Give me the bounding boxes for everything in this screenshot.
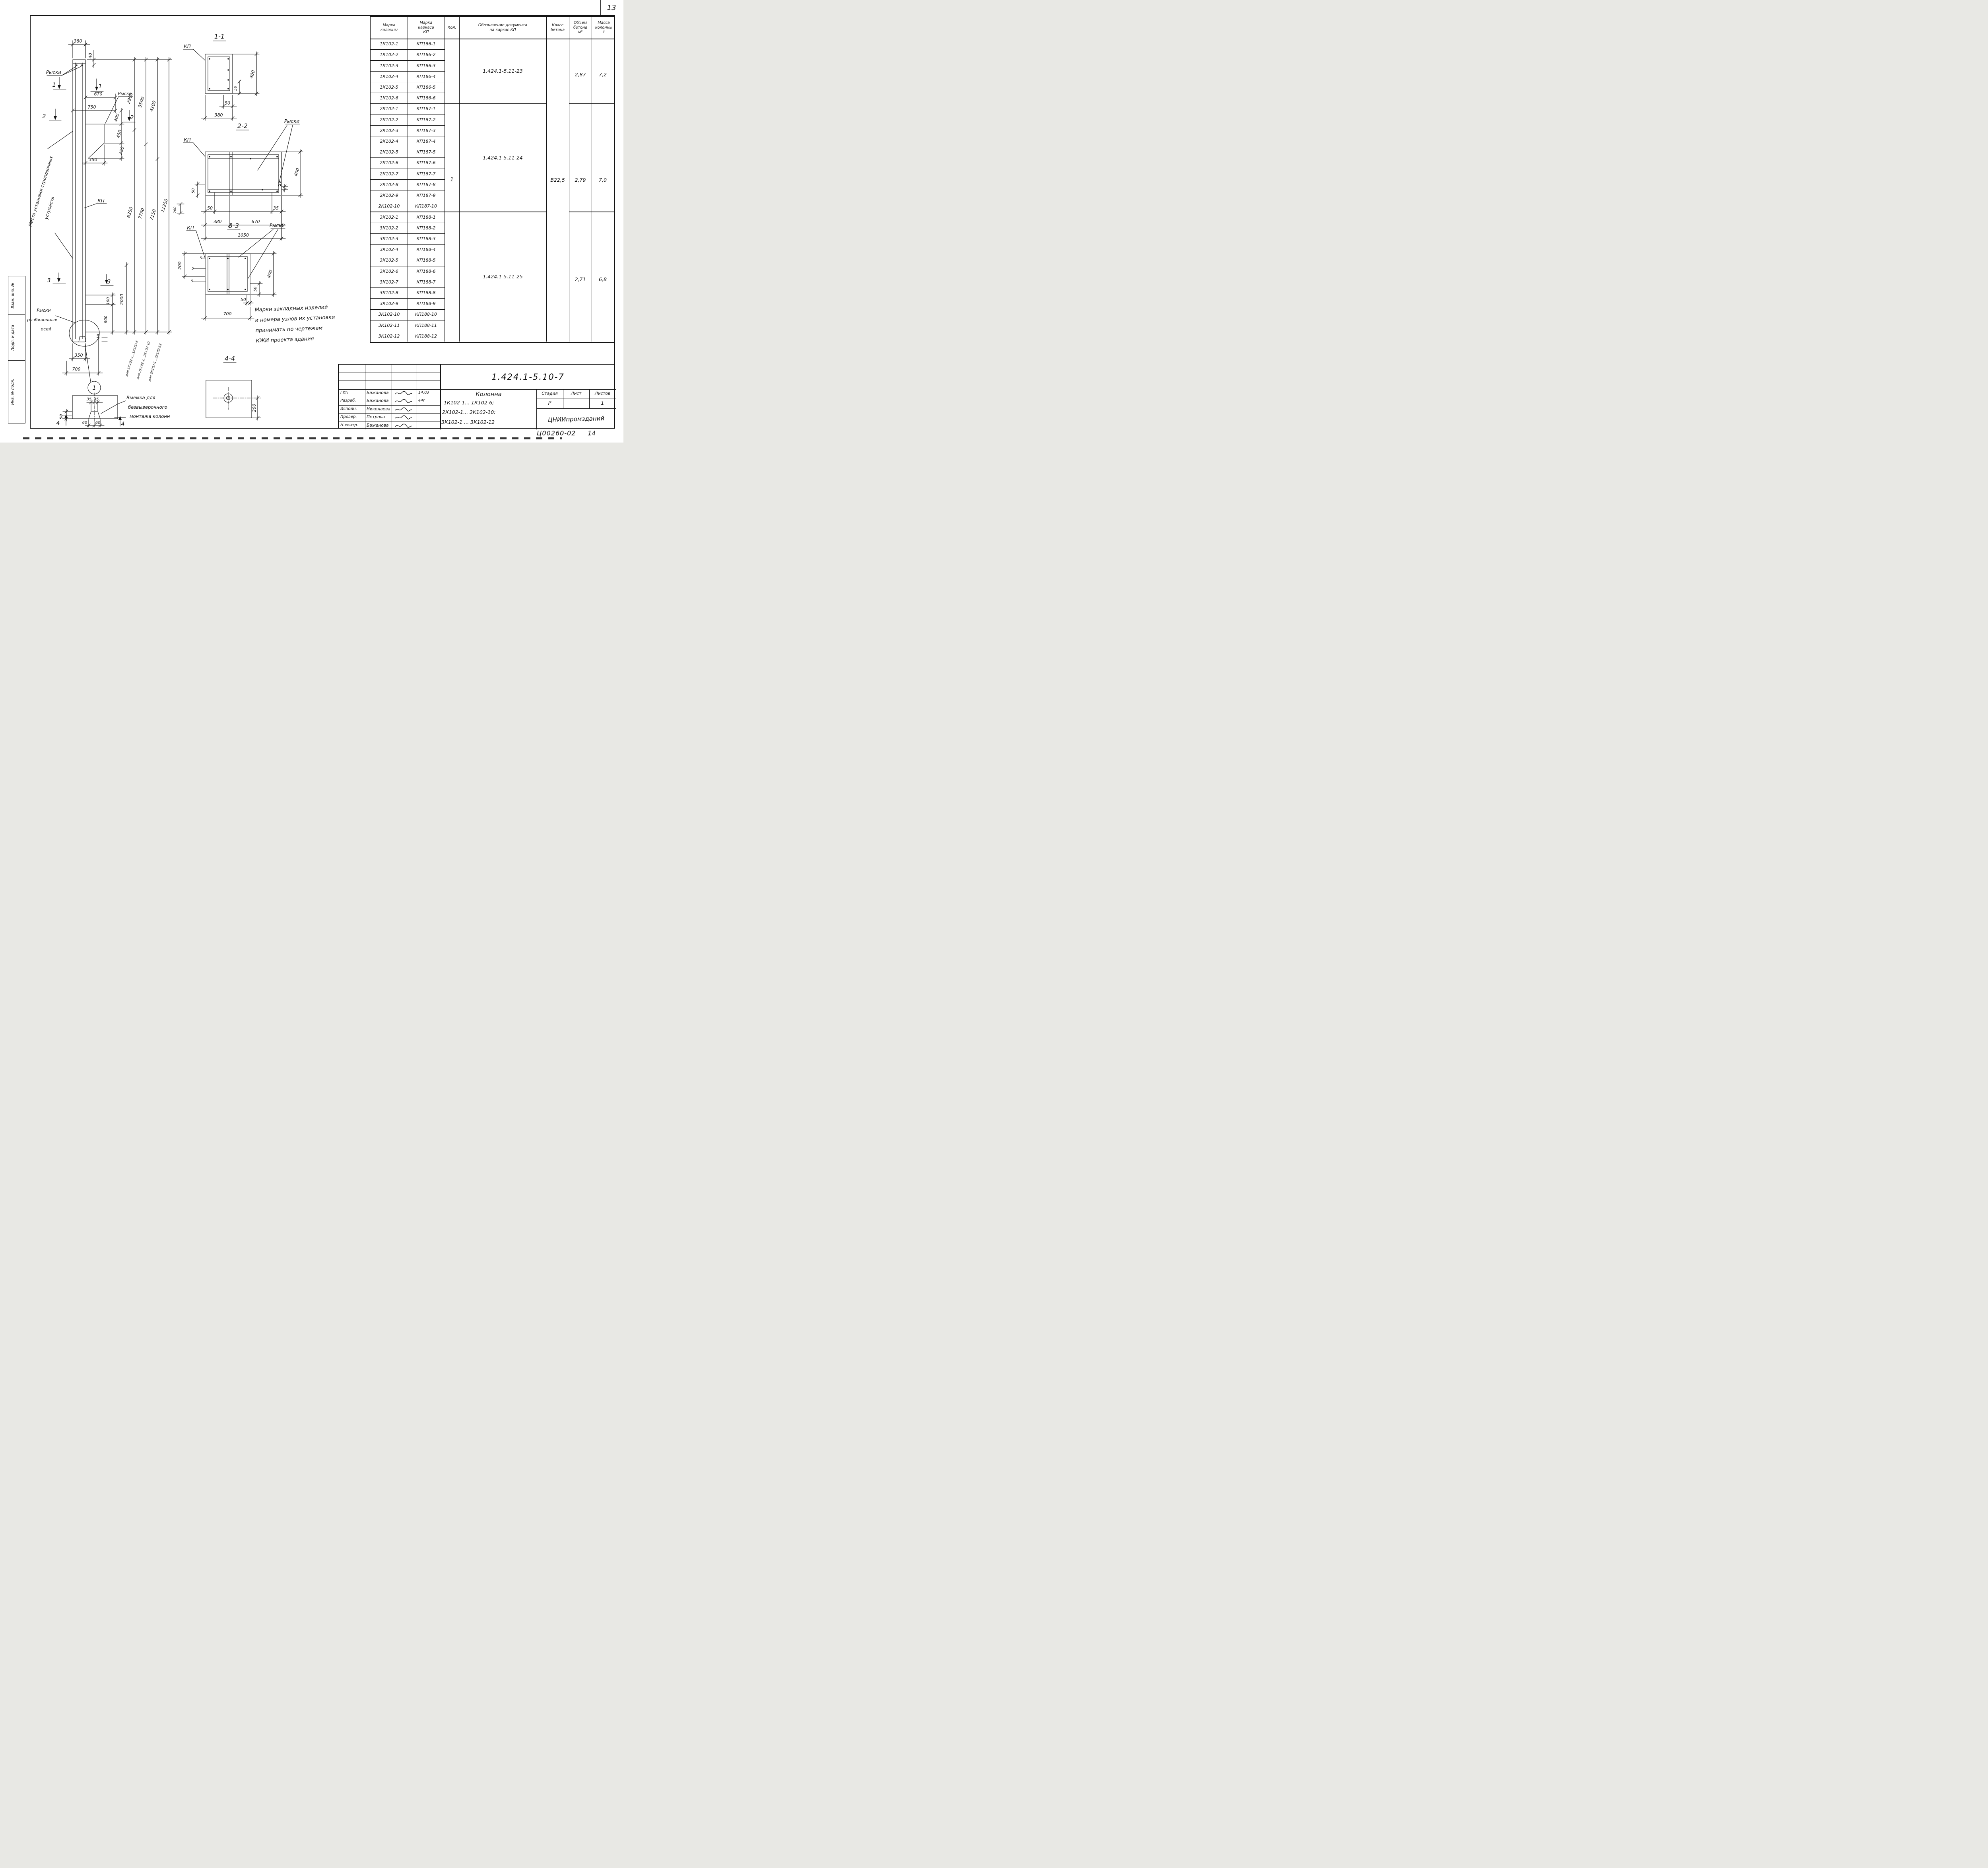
column-mark-cell: 2К102-9 xyxy=(371,190,408,201)
signature-scribble xyxy=(394,407,413,412)
sig-name: Николаева xyxy=(367,405,390,413)
dim-label: 670 xyxy=(252,219,260,224)
table-header-concrete_class: Класс бетона xyxy=(546,17,569,39)
column-mark-cell: 2К102-5 xyxy=(371,147,408,157)
sig-role: Исполн. xyxy=(340,405,357,413)
dim-label: 50 xyxy=(59,414,64,419)
dim-label: для 3К102-1...3К102-12 xyxy=(148,343,163,382)
dim-label: 400 xyxy=(248,70,256,79)
frame-mark-cell: КП187-2 xyxy=(408,115,445,125)
dim-label: 3 xyxy=(107,279,111,285)
title-block-product: Колонна xyxy=(441,390,536,399)
sheet-header: Лист xyxy=(563,389,589,398)
dim-label: 50 xyxy=(207,206,213,211)
dim-label: 4100 xyxy=(149,100,157,113)
frame-mark-cell: КП187-6 xyxy=(408,157,445,168)
frame-mark-cell: КП186-2 xyxy=(408,49,445,60)
dim-label: 7150 xyxy=(149,209,157,221)
volume-value: 2,87 xyxy=(569,68,592,80)
frame-mark-cell: КП187-1 xyxy=(408,103,445,114)
column-mark-cell: 2К102-6 xyxy=(371,157,408,168)
sig-date: 44г xyxy=(418,397,425,405)
dim-label: 4 xyxy=(121,421,125,427)
column-mark-cell: 1К102-1 xyxy=(371,39,408,49)
volume-value: 2,71 xyxy=(569,273,592,285)
dim-label: 380 xyxy=(214,219,222,224)
column-mark-cell: 3К102-2 xyxy=(371,223,408,233)
dim-label: 670 xyxy=(94,91,103,97)
dim-label: КП xyxy=(184,44,191,49)
stage-value: Р xyxy=(536,398,563,408)
dim-label: 1-1 xyxy=(214,33,225,40)
sig-name: Петрова xyxy=(367,413,385,421)
dim-label: 11250 xyxy=(160,198,169,213)
dim-label: устройств xyxy=(44,196,56,220)
dim-label: 1 xyxy=(99,83,102,90)
sig-role: Разраб. xyxy=(340,397,356,405)
dim-label: 50 xyxy=(233,86,238,91)
sig-role: ГИП xyxy=(340,389,349,397)
table-header-doc: Обозначение документа на каркас КП xyxy=(459,17,546,39)
column-mark-cell: 3К102-7 xyxy=(371,277,408,287)
dim-label: 5 xyxy=(200,256,202,260)
table-header-qty: Кол. xyxy=(445,17,459,39)
column-mark-cell: 2К102-3 xyxy=(371,125,408,136)
dim-label: 380 xyxy=(215,113,223,118)
table-group-sep xyxy=(569,212,614,212)
dim-label: 900 xyxy=(104,315,108,323)
column-mark-cell: 2К102-7 xyxy=(371,169,408,179)
dim-label: 5 xyxy=(192,267,194,271)
signature-scribble xyxy=(394,415,413,420)
doc-designation: 1.424.1-5.11-25 xyxy=(459,212,546,342)
qty-value: 1 xyxy=(445,174,459,186)
dim-label: 700 xyxy=(223,311,232,317)
dim-label: Места установки строповочных xyxy=(27,155,54,227)
dim-label: 3500 xyxy=(137,96,146,109)
frame-mark-cell: КП188-1 xyxy=(408,212,445,222)
dim-label: 400 xyxy=(113,113,120,122)
dim-label: 400 xyxy=(293,167,301,177)
column-mark-cell: 2К102-2 xyxy=(371,115,408,125)
mass-value: 6,8 xyxy=(592,273,614,285)
table-header-mark: Марка колонны xyxy=(371,17,408,39)
frame-mark-cell: КП188-11 xyxy=(408,320,445,331)
section-2-2-view xyxy=(183,124,303,240)
sig-role: Н.контр. xyxy=(340,421,358,429)
dim-label: 7750 xyxy=(137,208,146,220)
sig-date: 14.03 xyxy=(418,389,429,397)
mass-value: 7,0 xyxy=(592,174,614,186)
dim-label: 50 xyxy=(191,188,196,194)
column-mark-cell: 3К102-9 xyxy=(371,298,408,309)
scan-edge-artifact xyxy=(23,437,562,439)
dim-label: разбивочных xyxy=(27,317,57,322)
signature-scribble xyxy=(394,423,413,429)
footer-code: Ц00260-02 xyxy=(537,429,576,437)
column-mark-cell: 1К102-5 xyxy=(371,82,408,93)
column-mark-cell: 2К102-10 xyxy=(371,201,408,212)
dim-label: 200 xyxy=(177,262,182,270)
dim-label: монтажа колонн xyxy=(130,414,170,419)
sig-name: Бажанова xyxy=(367,421,388,429)
column-mark-cell: 1К102-3 xyxy=(371,60,408,71)
frame-mark-cell: КП188-2 xyxy=(408,223,445,233)
table-header-mass: Масса колонны т xyxy=(592,17,616,39)
frame-mark-cell: КП187-5 xyxy=(408,147,445,157)
dim-label: 2 xyxy=(43,113,46,120)
dim-label: 3 xyxy=(47,278,51,284)
column-mark-cell: 1К102-2 xyxy=(371,49,408,60)
column-mark-cell: 3К102-1 xyxy=(371,212,408,222)
dim-label: 10 xyxy=(97,334,101,339)
column-mark-cell: 3К102-5 xyxy=(371,255,408,266)
signature-rows: ГИПБажанова14.03Разраб.Бажанова44гИсполн… xyxy=(339,389,440,429)
sheets-header: Листов xyxy=(589,389,616,398)
column-mark-cell: 3К102-6 xyxy=(371,266,408,277)
frame-mark-cell: КП187-4 xyxy=(408,136,445,147)
frame-mark-cell: КП188-8 xyxy=(408,287,445,298)
dim-label: 1050 xyxy=(238,233,249,238)
frame-mark-cell: КП188-6 xyxy=(408,266,445,277)
dim-label: 200 xyxy=(173,206,177,213)
dim-label: 4 xyxy=(56,420,60,427)
dim-label: Выемка для xyxy=(126,395,155,400)
signature-scribble xyxy=(394,398,413,404)
dim-label: КП xyxy=(97,198,105,204)
table-group-sep xyxy=(569,103,614,104)
frame-mark-cell: КП186-3 xyxy=(408,60,445,71)
title-block-marks-1: 1К102-1... 1К102-6; xyxy=(444,400,494,406)
dim-label: 100 xyxy=(106,297,111,305)
dim-label: 4-4 xyxy=(225,355,235,362)
frame-mark-cell: КП186-5 xyxy=(408,82,445,93)
dim-label: 200 xyxy=(252,404,257,412)
dim-label: 50 xyxy=(225,101,230,106)
dimension-labels: 38040Рыски11670750Рыска22400450350350КПМ… xyxy=(27,33,301,427)
column-mark-cell: 2К102-4 xyxy=(371,136,408,147)
dim-label: 1 xyxy=(93,385,96,391)
column-mark-cell: 2К102-8 xyxy=(371,179,408,190)
doc-designation: 1.424.1-5.11-24 xyxy=(459,103,546,212)
dim-label: 8350 xyxy=(126,206,134,219)
dim-label: КП xyxy=(184,137,191,143)
sheet-value xyxy=(563,398,589,408)
drawing-sheet: 13 Взам. инв. № Подп. и дата Инв. № подл… xyxy=(0,0,623,443)
dim-label: безвыверочного xyxy=(128,404,167,410)
title-block-doc-number: 1.424.1-5.10-7 xyxy=(440,365,616,389)
frame-mark-cell: КП186-4 xyxy=(408,71,445,82)
frame-mark-cell: КП188-12 xyxy=(408,331,445,342)
frame-mark-cell: КП187-9 xyxy=(408,190,445,201)
general-notes: Марки закладных изделий и номера узлов и… xyxy=(254,301,367,347)
column-mark-cell: 3К102-8 xyxy=(371,287,408,298)
signature-scribble xyxy=(394,390,413,396)
dim-label: 350 xyxy=(89,157,97,162)
dim-label: 50 xyxy=(253,287,258,292)
dim-label: 2 xyxy=(130,115,134,121)
frame-mark-cell: КП186-1 xyxy=(408,39,445,49)
dim-label: 60 xyxy=(95,421,101,425)
title-block-marks-2: 2К102-1... 2К102-10; xyxy=(442,409,495,415)
column-mark-cell: 3К102-10 xyxy=(371,309,408,320)
dim-label: 2-2 xyxy=(237,122,248,130)
column-mark-cell: 3К102-3 xyxy=(371,233,408,244)
frame-mark-cell: КП188-5 xyxy=(408,255,445,266)
frame-mark-cell: КП186-6 xyxy=(408,93,445,103)
column-mark-cell: 3К102-12 xyxy=(371,331,408,342)
dim-label: 50 xyxy=(241,297,246,302)
frame-mark-cell: КП188-10 xyxy=(408,309,445,320)
column-elevation-view xyxy=(47,41,184,394)
volume-value: 2,79 xyxy=(569,174,592,186)
dim-label: Рыски xyxy=(46,70,62,75)
frame-mark-cell: КП188-9 xyxy=(408,298,445,309)
spec-table: Марка колонныМарка каркаса КПКол.Обознач… xyxy=(370,16,615,343)
dim-label: 380 xyxy=(74,39,82,44)
base-recess-detail-view xyxy=(60,393,126,427)
title-block-marks-3: 3К102-1 ... 3К102-12 xyxy=(441,419,495,425)
mass-value: 7,2 xyxy=(592,68,614,80)
table-header-volume: Объем бетона м³ xyxy=(569,17,592,39)
section-1-1-view xyxy=(183,41,259,120)
title-block: 1.424.1-5.10-7 Колонна 1К102-1... 1К102-… xyxy=(338,364,615,429)
dim-label: 3-3 xyxy=(229,222,239,229)
dim-label: осей xyxy=(41,326,52,332)
dim-label: 25 xyxy=(278,181,282,186)
column-mark-cell: 1К102-4 xyxy=(371,71,408,82)
frame-mark-cell: КП188-7 xyxy=(408,277,445,287)
dim-label: 60 xyxy=(82,421,87,425)
organization-name: ЦНИИпромзданий xyxy=(536,407,616,430)
frame-mark-cell: КП188-4 xyxy=(408,244,445,255)
column-mark-cell: 3К102-11 xyxy=(371,320,408,331)
footer-sheet-number: 14 xyxy=(588,429,596,437)
column-mark-cell: 3К102-4 xyxy=(371,244,408,255)
dim-label: Рыски xyxy=(270,223,285,228)
frame-mark-cell: КП187-8 xyxy=(408,179,445,190)
sig-name: Бажанова xyxy=(367,397,388,405)
column-mark-cell: 2К102-1 xyxy=(371,103,408,114)
dim-label: КП xyxy=(187,225,194,231)
dim-label: для 2К102-1...2К102-10 xyxy=(136,341,151,380)
column-mark-cell: 1К102-6 xyxy=(371,93,408,103)
dim-label: 5 xyxy=(191,280,193,284)
concrete-class-value: В22,5 xyxy=(546,174,569,186)
dim-label: 750 xyxy=(88,105,96,110)
dim-label: 450 xyxy=(115,129,123,139)
doc-designation: 1.424.1-5.11-23 xyxy=(459,39,546,103)
table-header-frame: Марка каркаса КП xyxy=(408,17,445,39)
sig-role: Провер. xyxy=(340,413,357,421)
dim-label: 350 xyxy=(118,146,125,155)
dim-label: 350 xyxy=(75,353,83,358)
dim-label: 1 xyxy=(52,82,56,88)
stage-header: Стадия xyxy=(536,389,563,398)
dim-label: 40 xyxy=(88,53,93,58)
dim-label: 35 xyxy=(87,397,92,402)
dim-label: Рыски xyxy=(37,308,50,313)
frame-mark-cell: КП188-3 xyxy=(408,233,445,244)
sig-name: Бажанова xyxy=(367,389,388,397)
frame-mark-cell: КП187-10 xyxy=(408,201,445,212)
frame-mark-cell: КП187-7 xyxy=(408,169,445,179)
dim-label: 700 xyxy=(72,367,81,372)
dim-label: для 1К102-1...1К102-6 xyxy=(124,340,139,377)
frame-mark-cell: КП187-3 xyxy=(408,125,445,136)
dim-label: Рыски xyxy=(284,118,300,124)
dim-label: 2000 xyxy=(119,294,124,305)
sheets-value: 1 xyxy=(589,398,616,408)
dim-label: 35 xyxy=(94,397,99,402)
dim-label: 35 xyxy=(273,206,279,211)
dim-label: 400 xyxy=(266,269,274,279)
